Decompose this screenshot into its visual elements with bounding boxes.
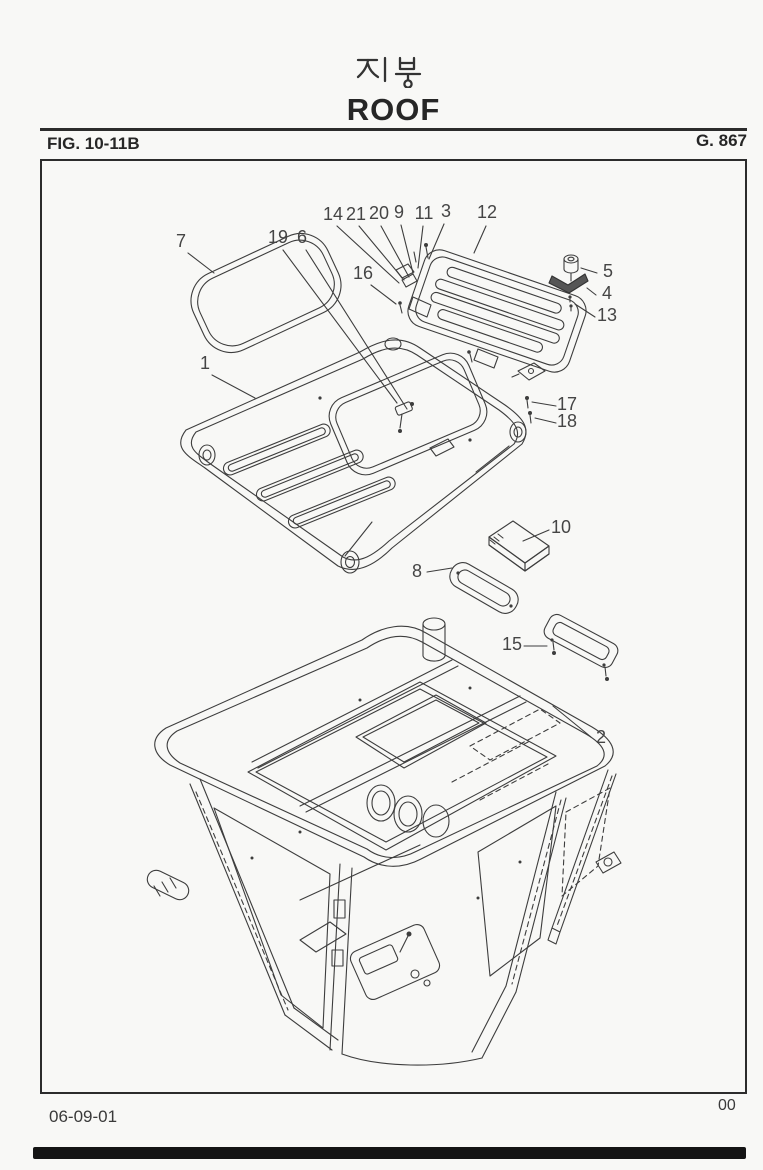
catalog-page: 지붕 ROOF FIG. 10-11B G. 867 (0, 0, 763, 1170)
part-label-12: 12 (477, 202, 497, 222)
part-label-6: 6 (297, 227, 307, 247)
part-label-3: 3 (441, 201, 451, 221)
part-12-hatch-cover (396, 243, 590, 376)
part-label-21: 21 (346, 204, 366, 224)
part-10-pad (489, 521, 549, 571)
left-handle (144, 867, 191, 902)
part-label-20: 20 (369, 203, 389, 223)
part-label-16: 16 (353, 263, 373, 283)
part-7-seal-ring (181, 224, 351, 363)
part-label-19: 19 (268, 227, 288, 247)
part-label-13: 13 (597, 305, 617, 325)
part-8-plate (445, 558, 522, 618)
footer-date: 06-09-01 (49, 1107, 117, 1127)
part-label-2: 2 (596, 727, 606, 747)
part-label-9: 9 (394, 202, 404, 222)
exploded-diagram: 14 21 20 9 11 3 12 7 19 6 16 5 4 13 1 17… (0, 0, 763, 1170)
part-label-10: 10 (551, 517, 571, 537)
part-1-roof-panel (181, 338, 526, 573)
part-label-14: 14 (323, 204, 343, 224)
scan-edge-artifact (33, 1147, 746, 1159)
part-label-11: 11 (415, 203, 434, 223)
console-box (348, 922, 442, 1002)
leader-lines (188, 224, 597, 737)
part-label-18: 18 (557, 411, 577, 431)
part-label-1: 1 (200, 353, 210, 373)
roof-vent-ducts (367, 785, 449, 837)
part-2-cab-assembly (144, 618, 621, 1065)
part-label-8: 8 (412, 561, 422, 581)
part-label-7: 7 (176, 231, 186, 251)
sunroof-latch (395, 401, 414, 433)
page-number: 00 (718, 1097, 736, 1115)
part-label-4: 4 (602, 283, 612, 303)
part-15-frame (541, 612, 620, 681)
part-label-15: 15 (502, 634, 522, 654)
part-label-5: 5 (603, 261, 613, 281)
